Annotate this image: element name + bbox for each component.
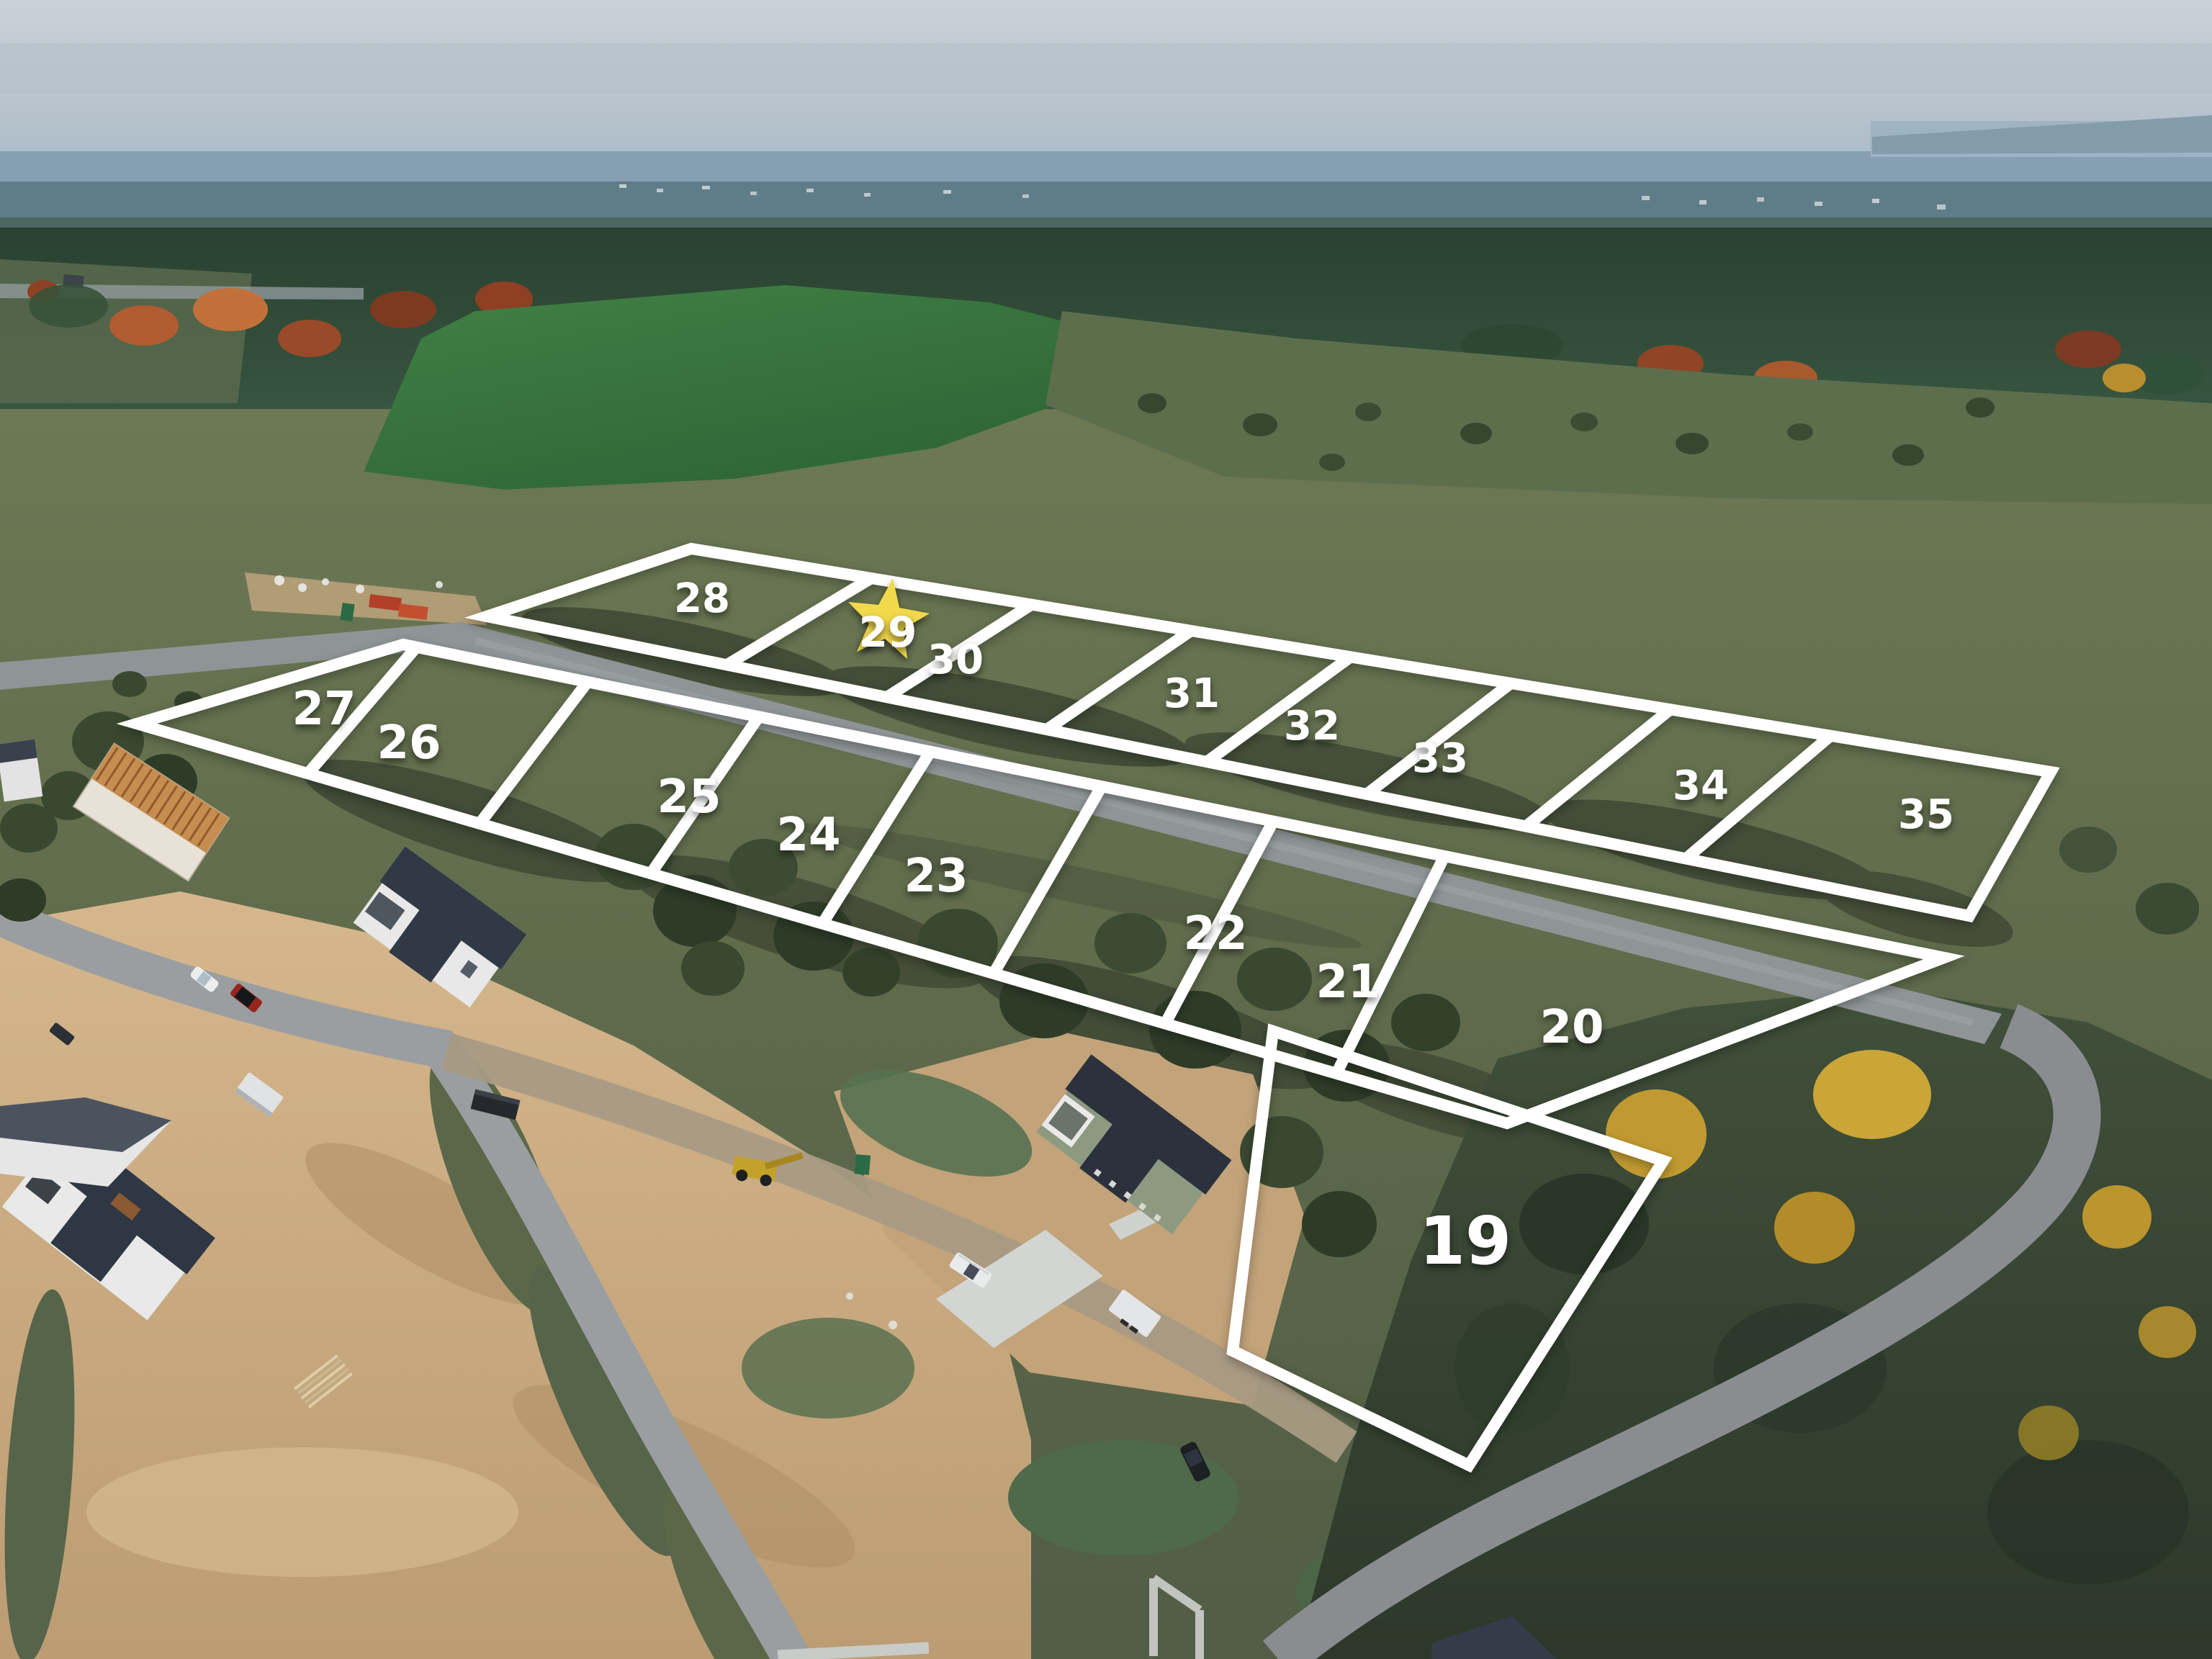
lot-label-35: 35 [1898, 791, 1954, 838]
lot-label-28: 28 [674, 575, 730, 622]
lot-label-32: 32 [1284, 703, 1340, 750]
aerial-lot-photo: 28 29 30 31 32 33 34 35 27 26 25 24 23 2… [0, 0, 2212, 1659]
lot-label-22: 22 [1183, 907, 1247, 961]
lot-label-34: 34 [1673, 763, 1729, 809]
lot-label-25: 25 [657, 770, 721, 824]
lot-label-21: 21 [1316, 956, 1380, 1009]
lot-label-29: 29 [859, 608, 917, 657]
lot-label-30: 30 [927, 637, 984, 683]
lot-label-26: 26 [377, 716, 441, 770]
lot-label-33: 33 [1412, 735, 1468, 782]
porta-potty [340, 603, 354, 621]
lot-label-24: 24 [776, 809, 840, 862]
lot-label-23: 23 [904, 850, 968, 903]
golden-tree [2103, 364, 2146, 392]
lot-label-27: 27 [292, 683, 356, 736]
lot-label-19: 19 [1419, 1202, 1511, 1280]
lot-label-31: 31 [1164, 670, 1220, 717]
aerial-photo-canvas: 28 29 30 31 32 33 34 35 27 26 25 24 23 2… [0, 0, 2212, 1659]
lot-label-20: 20 [1539, 1001, 1604, 1054]
porta-potty-2 [855, 1154, 871, 1175]
